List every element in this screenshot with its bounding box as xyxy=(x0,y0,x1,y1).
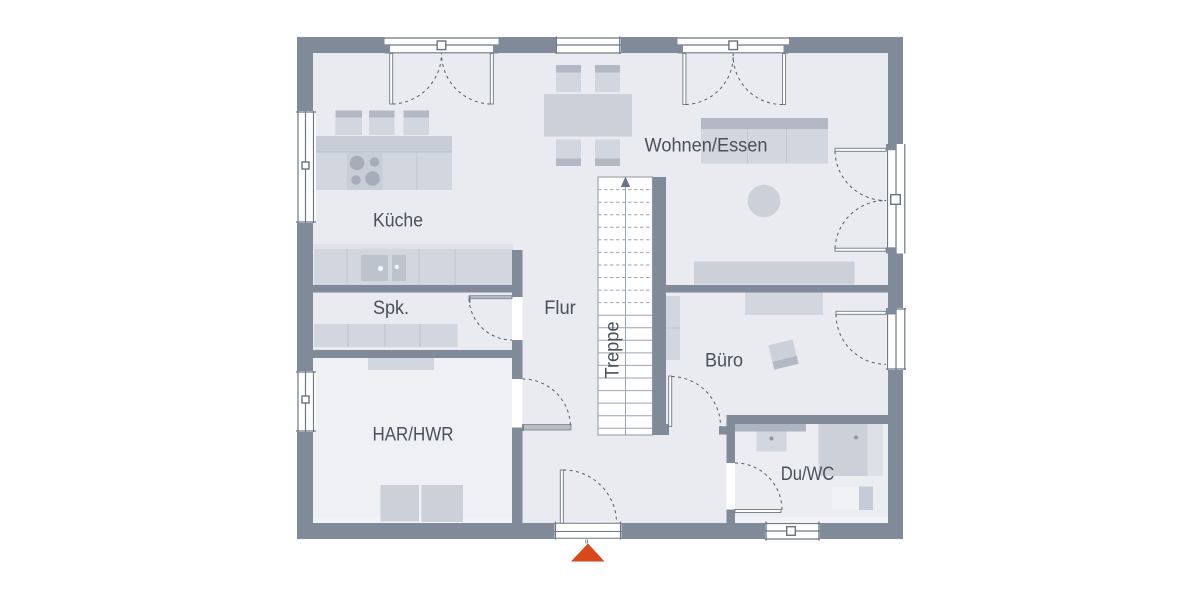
svg-text:Büro: Büro xyxy=(705,351,743,372)
svg-text:Wohnen/Essen: Wohnen/Essen xyxy=(645,136,768,157)
svg-text:Spk.: Spk. xyxy=(373,298,409,319)
svg-text:Küche: Küche xyxy=(373,211,423,232)
svg-text:Du/WC: Du/WC xyxy=(781,464,835,485)
svg-text:HAR/HWR: HAR/HWR xyxy=(373,425,454,446)
svg-text:Flur: Flur xyxy=(544,298,576,319)
svg-text:Treppe: Treppe xyxy=(603,322,624,379)
